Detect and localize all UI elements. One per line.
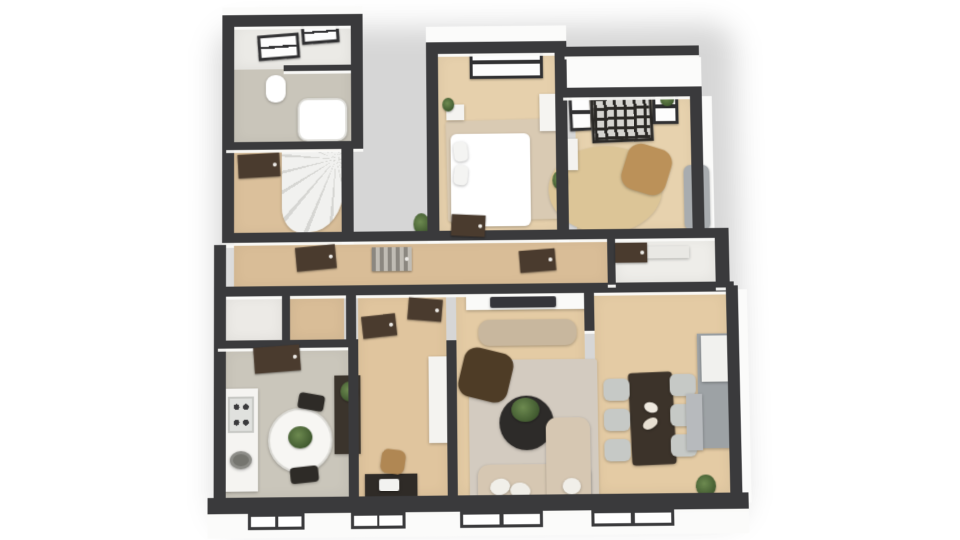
desk-chair <box>379 448 406 475</box>
kitchen-cooktop <box>228 397 254 434</box>
hallway-door-2 <box>519 248 557 273</box>
wall-living-dining-stub <box>584 287 595 331</box>
desk-laptop <box>379 479 399 491</box>
media-console <box>478 319 576 346</box>
dining-chair-right-1 <box>669 374 696 396</box>
wall-office-parapet <box>564 45 699 56</box>
floorplan-3d-render <box>0 0 960 540</box>
workroom-door-west <box>361 313 397 339</box>
floorplan-screenshot <box>0 0 960 540</box>
coffee-table-plant <box>511 398 539 422</box>
bathroom-roof-window-1 <box>257 33 300 62</box>
wall-kitchen-east <box>348 339 359 500</box>
wall-work-living-divider <box>446 340 458 499</box>
entry-closet-floor <box>226 296 282 341</box>
dining-chair-left-3 <box>604 439 631 462</box>
kitchen-door <box>253 344 301 374</box>
facade-window-dining <box>591 509 674 526</box>
bed-pillow-bottom <box>453 165 468 186</box>
wall-stair-east <box>341 149 353 242</box>
stair-room-door <box>237 152 280 178</box>
toilet <box>266 75 286 103</box>
facade-office-top <box>563 57 702 90</box>
wall-bedroom-north <box>426 41 566 54</box>
kitchen-chair-south <box>290 465 320 484</box>
workroom-door-east <box>407 297 443 321</box>
facade-window-living <box>460 511 543 528</box>
dining-chair-left-2 <box>604 409 631 431</box>
wall-entry-divider-1 <box>282 294 290 342</box>
wall-bath-partition <box>284 65 351 72</box>
sofa-pillow-3 <box>563 478 581 494</box>
bedroom-door <box>451 214 486 237</box>
wall-west-lower <box>214 245 226 512</box>
wall-bathroom-east <box>351 14 364 149</box>
wall-topwing-north <box>222 14 362 27</box>
dining-chair-left-1 <box>603 379 629 401</box>
tv-screen <box>490 296 556 308</box>
bathtub <box>298 98 348 142</box>
kitchen-table-plant <box>288 426 312 448</box>
wall-bedroom-west <box>426 42 440 241</box>
wall-entry-divider-2 <box>346 293 356 341</box>
wall-west-upper <box>222 15 234 245</box>
facade-window-kitchen <box>248 513 305 530</box>
bedroom-plant <box>442 98 454 112</box>
facade-window-workroom <box>351 512 406 529</box>
wall-closet-east <box>715 228 730 288</box>
bed-pillow-top <box>453 141 469 162</box>
hallway-door-1 <box>295 244 337 272</box>
wall-office-north <box>563 86 702 97</box>
dining-marble-cabinet <box>686 394 703 451</box>
office-cube-shelf <box>590 94 654 144</box>
vestibule-floor <box>290 295 344 340</box>
wall-bath-stair-divider <box>226 141 351 150</box>
hall-closet-door <box>615 243 647 263</box>
hallway-glass-door <box>372 247 412 271</box>
